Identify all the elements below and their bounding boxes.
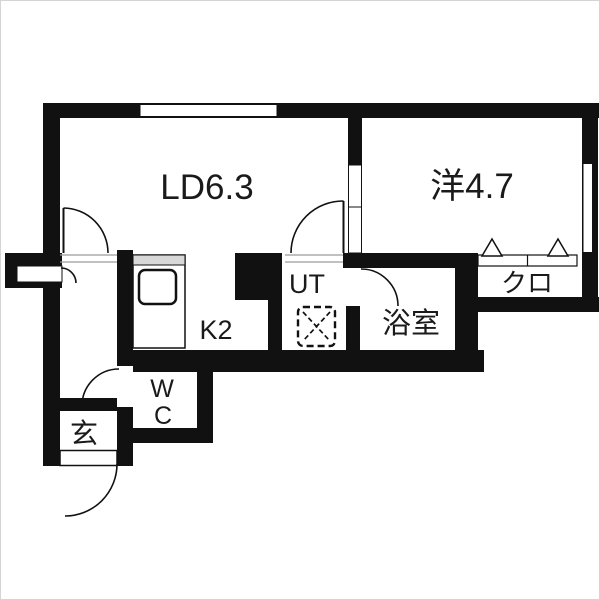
entrance-door-leaf (60, 451, 117, 466)
label-kitchen: K2 (199, 315, 232, 345)
wall-top (43, 103, 599, 118)
kitchen-sink (139, 270, 176, 304)
label-utility: UT (289, 269, 325, 299)
wall-toilet-bottom (133, 428, 213, 443)
wall-closet-bottom (478, 297, 599, 312)
label-bathroom: 浴室 (382, 307, 440, 340)
label-toilet-c: C (154, 402, 172, 430)
wall-western-bottom (343, 253, 478, 268)
label-living-dining: LD6.3 (160, 168, 253, 207)
floor-plan: LD6.3 洋4.7 クロ 浴室 UT K2 W C 玄 (0, 0, 600, 600)
label-toilet-w: W (150, 375, 174, 403)
wall-entry-corner (43, 450, 60, 466)
bathroom-door-gap (346, 268, 360, 306)
label-western-room: 洋4.7 (430, 167, 514, 206)
wall-utility-left (268, 300, 282, 352)
top-window (140, 105, 277, 117)
wall-main-bottom (117, 350, 484, 372)
label-entrance: 玄 (70, 418, 98, 449)
toilet-door-gap (117, 366, 133, 407)
wall-ld-western-divider (348, 103, 362, 167)
right-window (583, 164, 593, 253)
wall-utility-corner (235, 253, 282, 300)
label-closet: クロ (501, 268, 553, 298)
sliding-door-ld-western (349, 165, 362, 253)
meter-box-slot (17, 266, 62, 282)
entrance-step (60, 398, 117, 411)
floor-plan-drawing: LD6.3 洋4.7 クロ 浴室 UT K2 W C 玄 (0, 0, 600, 600)
kitchen-counter-edge (133, 255, 185, 265)
wall-hall-right (117, 250, 133, 453)
